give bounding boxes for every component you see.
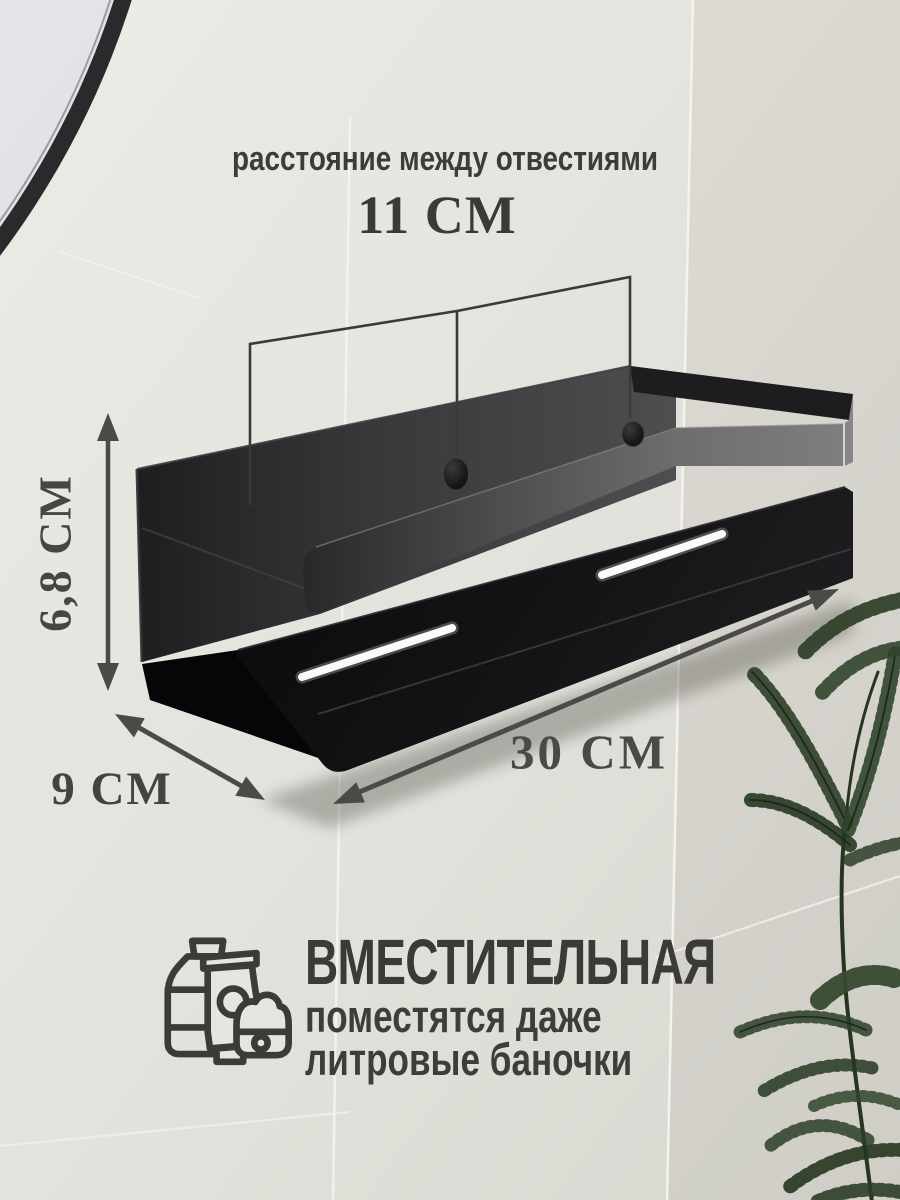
height-dimension-value: 6,8 СМ [29,474,82,632]
depth-dimension-value: 9 СМ [51,762,173,816]
mounting-screw-left [444,458,469,490]
product-photo: расстояние между отвестиями 11 СМ 6,8 СМ… [0,0,900,1200]
holes-distance-label: расстояние между отвестиями [224,141,667,178]
width-dimension-value: 30 СМ [510,724,668,781]
capacity-title: ВМЕСТИТЕЛЬНАЯ [305,925,715,999]
capacity-subtitle-line2: литровые баночки [305,1034,632,1086]
mounting-screw-right [622,422,644,447]
holes-distance-value: 11 СМ [307,184,567,246]
toiletries-icon [150,932,292,1074]
